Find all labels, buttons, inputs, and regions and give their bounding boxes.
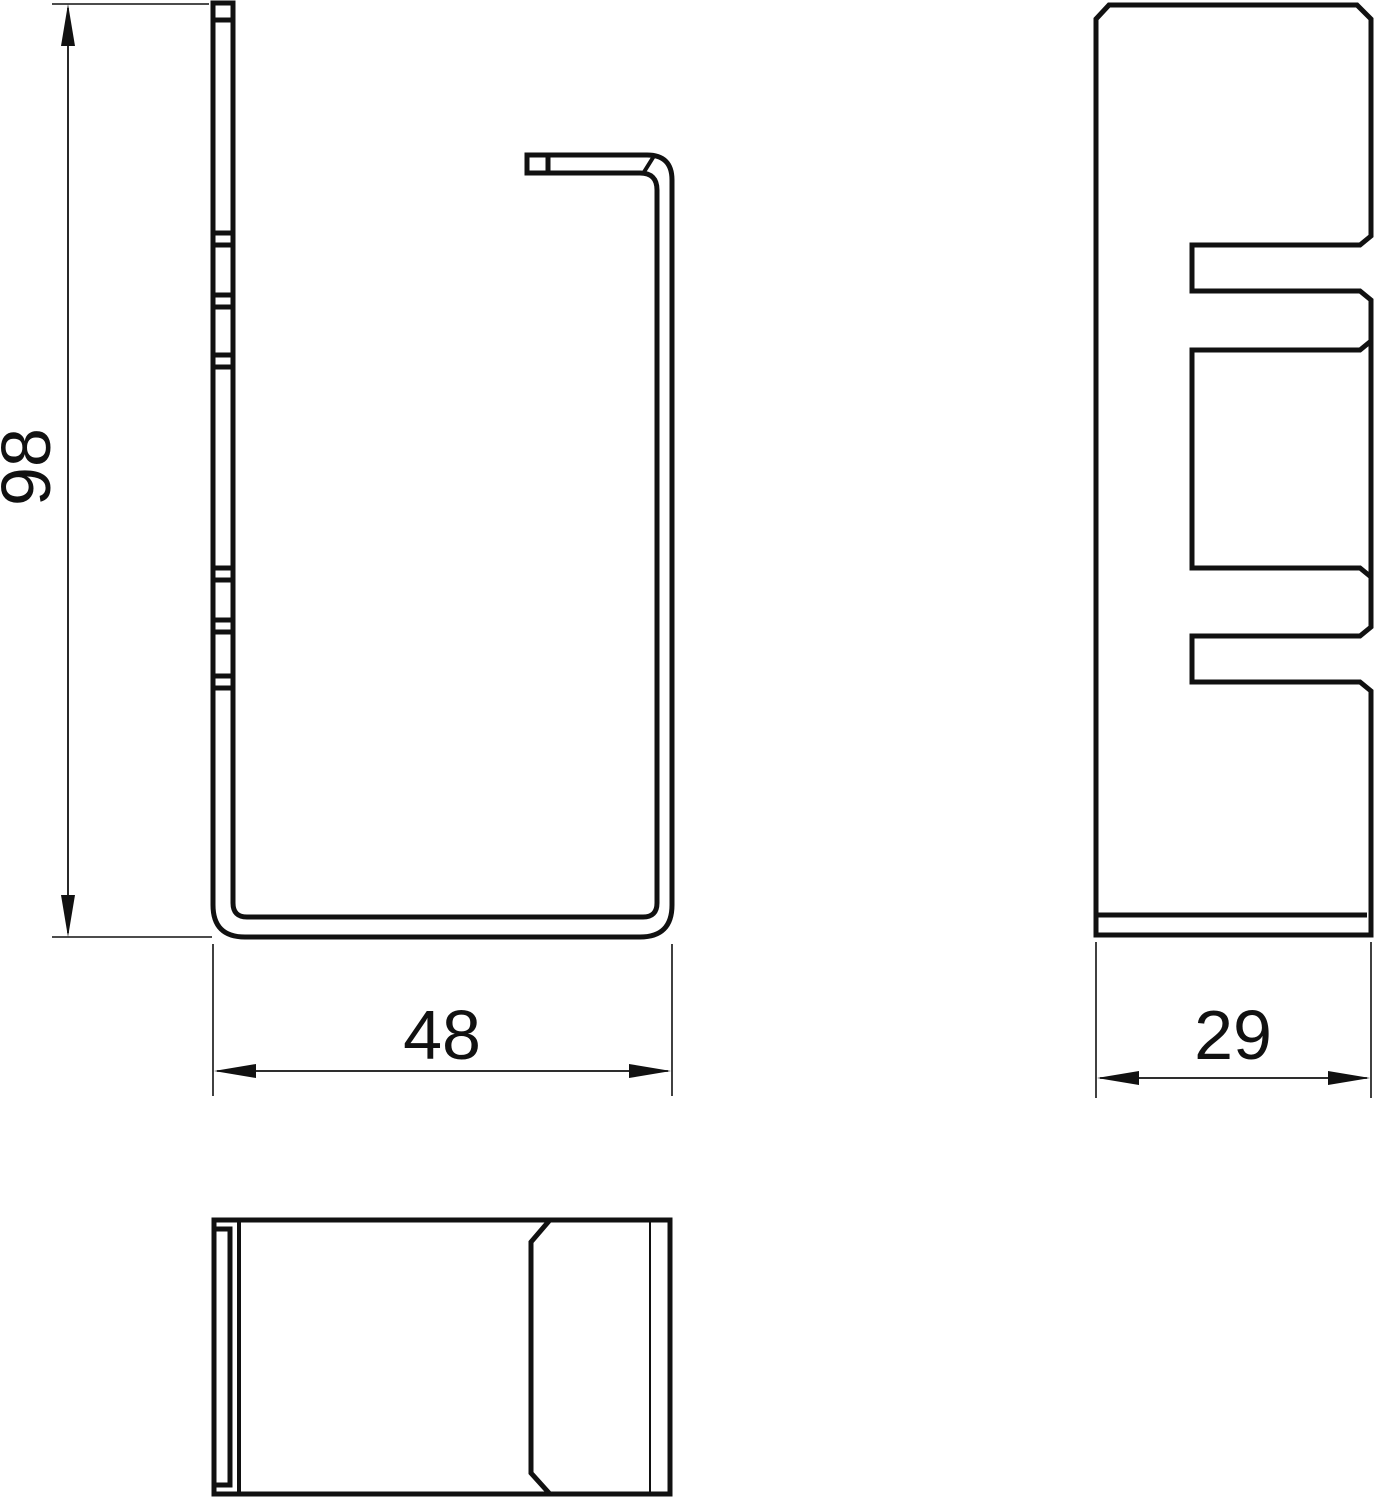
width-dimension: 48 bbox=[213, 944, 672, 1096]
depth-dimension: 29 bbox=[1096, 942, 1371, 1098]
segment-break-line bbox=[213, 233, 233, 245]
segment-break-line bbox=[213, 355, 233, 367]
arrowhead-down bbox=[61, 895, 75, 937]
height-dimension: 98 bbox=[0, 4, 212, 937]
segment-break-line bbox=[213, 676, 233, 688]
part-outline bbox=[213, 3, 672, 937]
segment-break-line bbox=[213, 568, 233, 580]
arrowhead-up bbox=[61, 4, 75, 46]
front-view bbox=[213, 3, 672, 937]
arrowhead-right bbox=[1328, 1071, 1370, 1085]
segment-break-line bbox=[213, 620, 233, 632]
side-view bbox=[1096, 5, 1371, 935]
part-outline bbox=[214, 1220, 670, 1494]
left-channel-line bbox=[216, 1229, 230, 1485]
arrowhead-left bbox=[214, 1064, 256, 1078]
recess-outline bbox=[1192, 341, 1371, 577]
bottom-view bbox=[214, 1220, 670, 1494]
dimension-label-height: 98 bbox=[0, 428, 65, 506]
arrowhead-left bbox=[1097, 1071, 1139, 1085]
bend-line bbox=[644, 156, 654, 172]
segment-break-line bbox=[213, 295, 233, 307]
arrowhead-right bbox=[629, 1064, 671, 1078]
hook-chamfer-line bbox=[531, 1221, 549, 1493]
drawing-canvas: 98 48 29 bbox=[0, 0, 1375, 1500]
part-outline bbox=[1096, 5, 1371, 935]
dimension-label-depth: 29 bbox=[1194, 996, 1272, 1074]
dimension-label-width: 48 bbox=[403, 996, 481, 1074]
technical-drawing-page: 98 48 29 bbox=[0, 0, 1375, 1500]
